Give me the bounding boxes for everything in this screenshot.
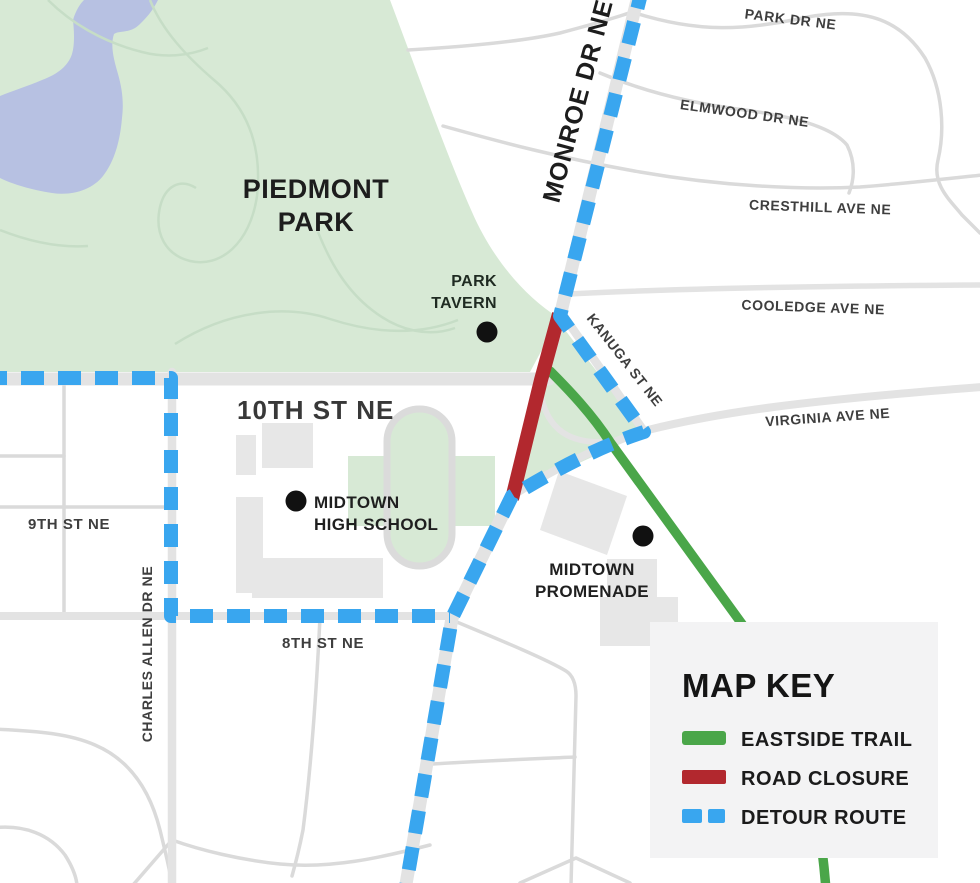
piedmont-park-label-line2: PARK <box>278 207 355 237</box>
park-dr-road <box>408 12 980 233</box>
school-building <box>252 558 383 598</box>
promenade-building <box>540 471 627 555</box>
road-closure-swatch <box>682 770 726 784</box>
southeast-curve-street <box>452 620 576 883</box>
map-key: MAP KEY EASTSIDE TRAIL ROAD CLOSURE DETO… <box>650 622 938 858</box>
south-block-street <box>292 617 320 876</box>
park-tavern-label-line1: PARK <box>451 273 497 290</box>
map-canvas: PARK DR NE ELMWOOD DR NE CRESTHILL AVE N… <box>0 0 980 883</box>
cooledge-ave-road <box>568 285 980 294</box>
school-building <box>262 423 313 468</box>
detour-route-swatch-dash1 <box>682 809 702 823</box>
street-label-cooledge: COOLEDGE AVE NE <box>741 297 885 318</box>
cresthill-ave-road <box>443 126 980 188</box>
street-label-8th-st: 8TH ST NE <box>282 635 364 652</box>
map-key-title: MAP KEY <box>682 667 835 704</box>
midtown-high-school-marker <box>286 491 307 512</box>
elmwood-dr-road <box>600 73 853 193</box>
piedmont-park-label-line1: PIEDMONT <box>243 174 390 204</box>
street-label-10th-st: 10TH ST NE <box>237 395 394 425</box>
eastside-trail-swatch <box>682 731 726 745</box>
detour-route-swatch-dash2 <box>708 809 725 823</box>
southeast-cross-street <box>432 757 575 764</box>
map-key-item-road-closure: ROAD CLOSURE <box>741 768 909 790</box>
midtown-high-school-label-line2: HIGH SCHOOL <box>314 515 438 534</box>
park-tavern-marker <box>477 322 498 343</box>
park-tavern-label-line2: TAVERN <box>431 295 497 312</box>
midtown-promenade-label-line1: MIDTOWN <box>549 560 635 579</box>
street-label-charles-allen: CHARLES ALLEN DR NE <box>139 566 155 743</box>
map-key-item-eastside-trail: EASTSIDE TRAIL <box>741 729 912 751</box>
street-label-park-dr: PARK DR NE <box>744 5 837 32</box>
map-key-item-detour-route: DETOUR ROUTE <box>741 807 907 829</box>
running-track <box>387 409 452 566</box>
midtown-promenade-marker <box>633 526 654 547</box>
midtown-high-school-label-line1: MIDTOWN <box>314 493 400 512</box>
street-label-9th-st: 9TH ST NE <box>28 516 110 533</box>
detour-map: PARK DR NE ELMWOOD DR NE CRESTHILL AVE N… <box>0 0 980 883</box>
street-label-cresthill: CRESTHILL AVE NE <box>749 197 892 218</box>
midtown-promenade-label-line2: PROMENADE <box>535 582 649 601</box>
school-building <box>236 435 256 475</box>
street-label-elmwood: ELMWOOD DR NE <box>679 96 810 130</box>
bottom-fan-street <box>520 858 630 883</box>
bottom-left-spur-road <box>0 827 77 883</box>
bottom-left-loop-road <box>0 729 172 883</box>
